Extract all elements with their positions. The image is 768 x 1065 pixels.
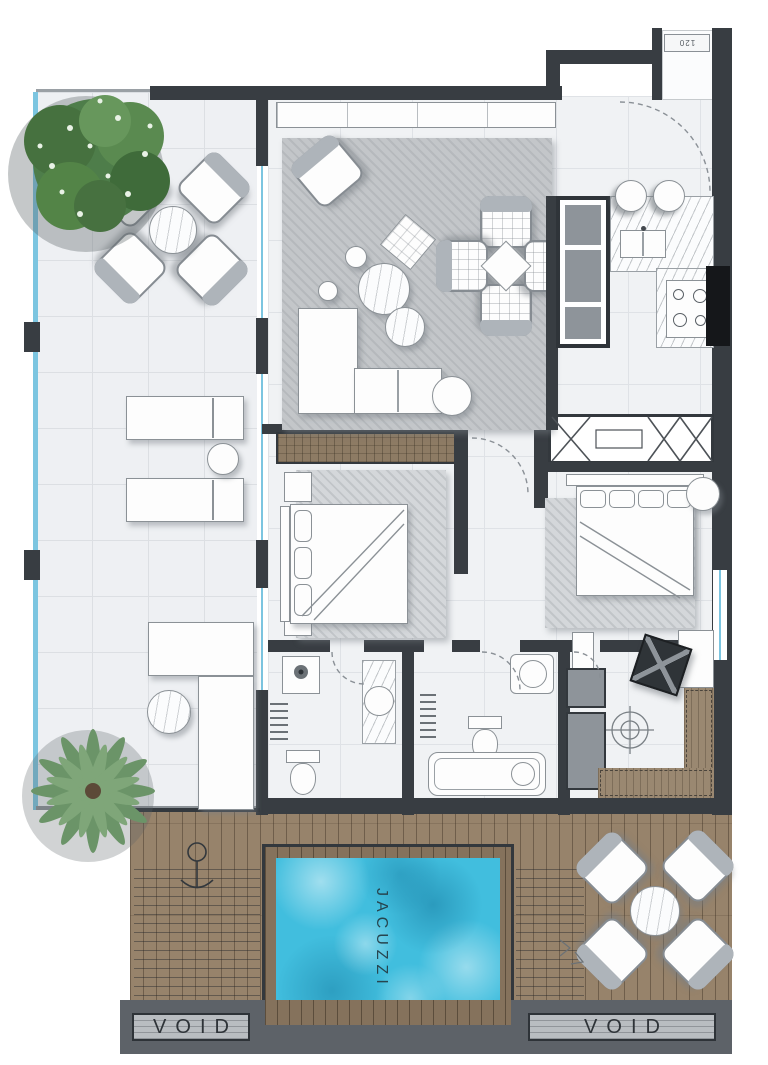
wall-below-closets	[534, 462, 714, 472]
outdoor-coffee-table	[147, 690, 191, 734]
window-bath-a	[257, 588, 267, 690]
hammock-left	[134, 868, 260, 996]
raised-platform-bottom	[598, 768, 714, 798]
bedroom2-pillow-2	[609, 490, 635, 508]
bar-stool-1	[615, 180, 647, 212]
fridge-column	[706, 266, 730, 346]
unit-number-label: 120	[679, 39, 695, 48]
wall-left-seg2	[256, 318, 268, 374]
sofa-chaise	[298, 308, 358, 414]
wall-bath-top-3	[452, 640, 480, 652]
bath-b-sink	[519, 660, 547, 688]
bathtub-drain	[511, 762, 535, 786]
wall-bedroom1-right	[454, 424, 468, 574]
floor-plan: 120 JACUZZI	[0, 0, 768, 1065]
sliding-door-bedroom1	[257, 374, 267, 540]
bath-a-toilet-bowl	[290, 763, 316, 795]
glass-balustrade	[33, 92, 38, 810]
wall-left-seg4	[256, 690, 268, 815]
wall-entry-left	[652, 28, 662, 100]
bar-stool-2	[653, 180, 685, 212]
shower-tray	[282, 656, 320, 694]
pier-stub-2	[24, 550, 40, 580]
jacuzzi-surround-bottom	[265, 1000, 511, 1025]
wardrobe-bedroom1	[276, 432, 460, 464]
bedroom1-nightstand-top	[284, 472, 312, 502]
raised-platform-right	[684, 688, 714, 774]
bath-b-toilet-tank	[468, 716, 502, 729]
sliding-door-living	[257, 166, 267, 318]
void-right-label: VOID	[575, 1016, 669, 1039]
wall-right	[712, 96, 732, 815]
bedroom1-headboard	[280, 506, 290, 622]
sun-lounger-2	[126, 478, 244, 522]
terrace-table	[149, 206, 197, 254]
bedroom2-pillow-1	[580, 490, 606, 508]
wall-left-seg3	[256, 540, 268, 588]
kitchen-tall-unit	[556, 196, 610, 348]
dining-chair-2	[480, 284, 532, 336]
coffee-table-small	[345, 246, 367, 268]
bedroom2-headboard	[566, 474, 704, 486]
outdoor-sofa-seat-b	[198, 676, 254, 810]
sun-lounger-1	[126, 396, 244, 440]
tall-unit-panel-3	[565, 307, 601, 339]
tall-unit-panel-1	[565, 205, 601, 245]
bedroom1-pillow-3	[294, 584, 312, 616]
wall-bath-divider-1	[402, 640, 414, 815]
bedroom1-pillow-2	[294, 547, 312, 579]
wall-top-a	[150, 86, 562, 100]
terrace-top-edge	[36, 89, 152, 92]
round-pouf	[432, 376, 472, 416]
utility-cabinet-1	[566, 668, 606, 708]
deck-table	[630, 886, 680, 936]
towel-bars-bath-a	[270, 700, 288, 740]
window-right-glazing	[713, 570, 727, 660]
lounger-1-backrest	[212, 398, 214, 438]
wall-bath-top-1	[268, 640, 330, 652]
sink-divider	[642, 232, 644, 256]
outdoor-sofa-seat-a	[148, 622, 254, 676]
lounger-side-table	[207, 443, 239, 475]
void-left-label: VOID	[144, 1016, 238, 1039]
unit-number-plate: 120	[664, 34, 710, 52]
hammock-right	[516, 868, 584, 996]
wall-top-b	[546, 50, 662, 64]
bedroom2-side-table	[686, 477, 720, 511]
closet-row-bedroom2	[548, 414, 714, 464]
sofa-cushion-line	[397, 370, 399, 412]
void-plate-right: VOID	[528, 1013, 716, 1041]
bath-a-toilet-tank	[286, 750, 320, 763]
wall-bath-top-2	[364, 640, 424, 652]
sink-faucet	[641, 226, 646, 231]
coffee-table-medium	[385, 307, 425, 347]
wall-entry-right	[712, 28, 732, 100]
pier-stub-1	[24, 322, 40, 352]
bath-a-sink	[364, 686, 394, 716]
tall-unit-panel-2	[565, 250, 601, 302]
bedroom1-pillow-1	[294, 510, 312, 542]
bedroom2-pillow-3	[638, 490, 664, 508]
lounger-2-backrest	[212, 480, 214, 520]
jacuzzi-label: JACUZZI	[372, 880, 398, 996]
side-pouf-small	[318, 281, 338, 301]
bathtub	[428, 752, 546, 796]
living-console	[276, 102, 556, 128]
wall-deck-top	[258, 798, 732, 814]
towel-radiator	[420, 690, 436, 738]
void-plate-left: VOID	[132, 1013, 250, 1041]
wall-left-seg1	[256, 86, 268, 166]
